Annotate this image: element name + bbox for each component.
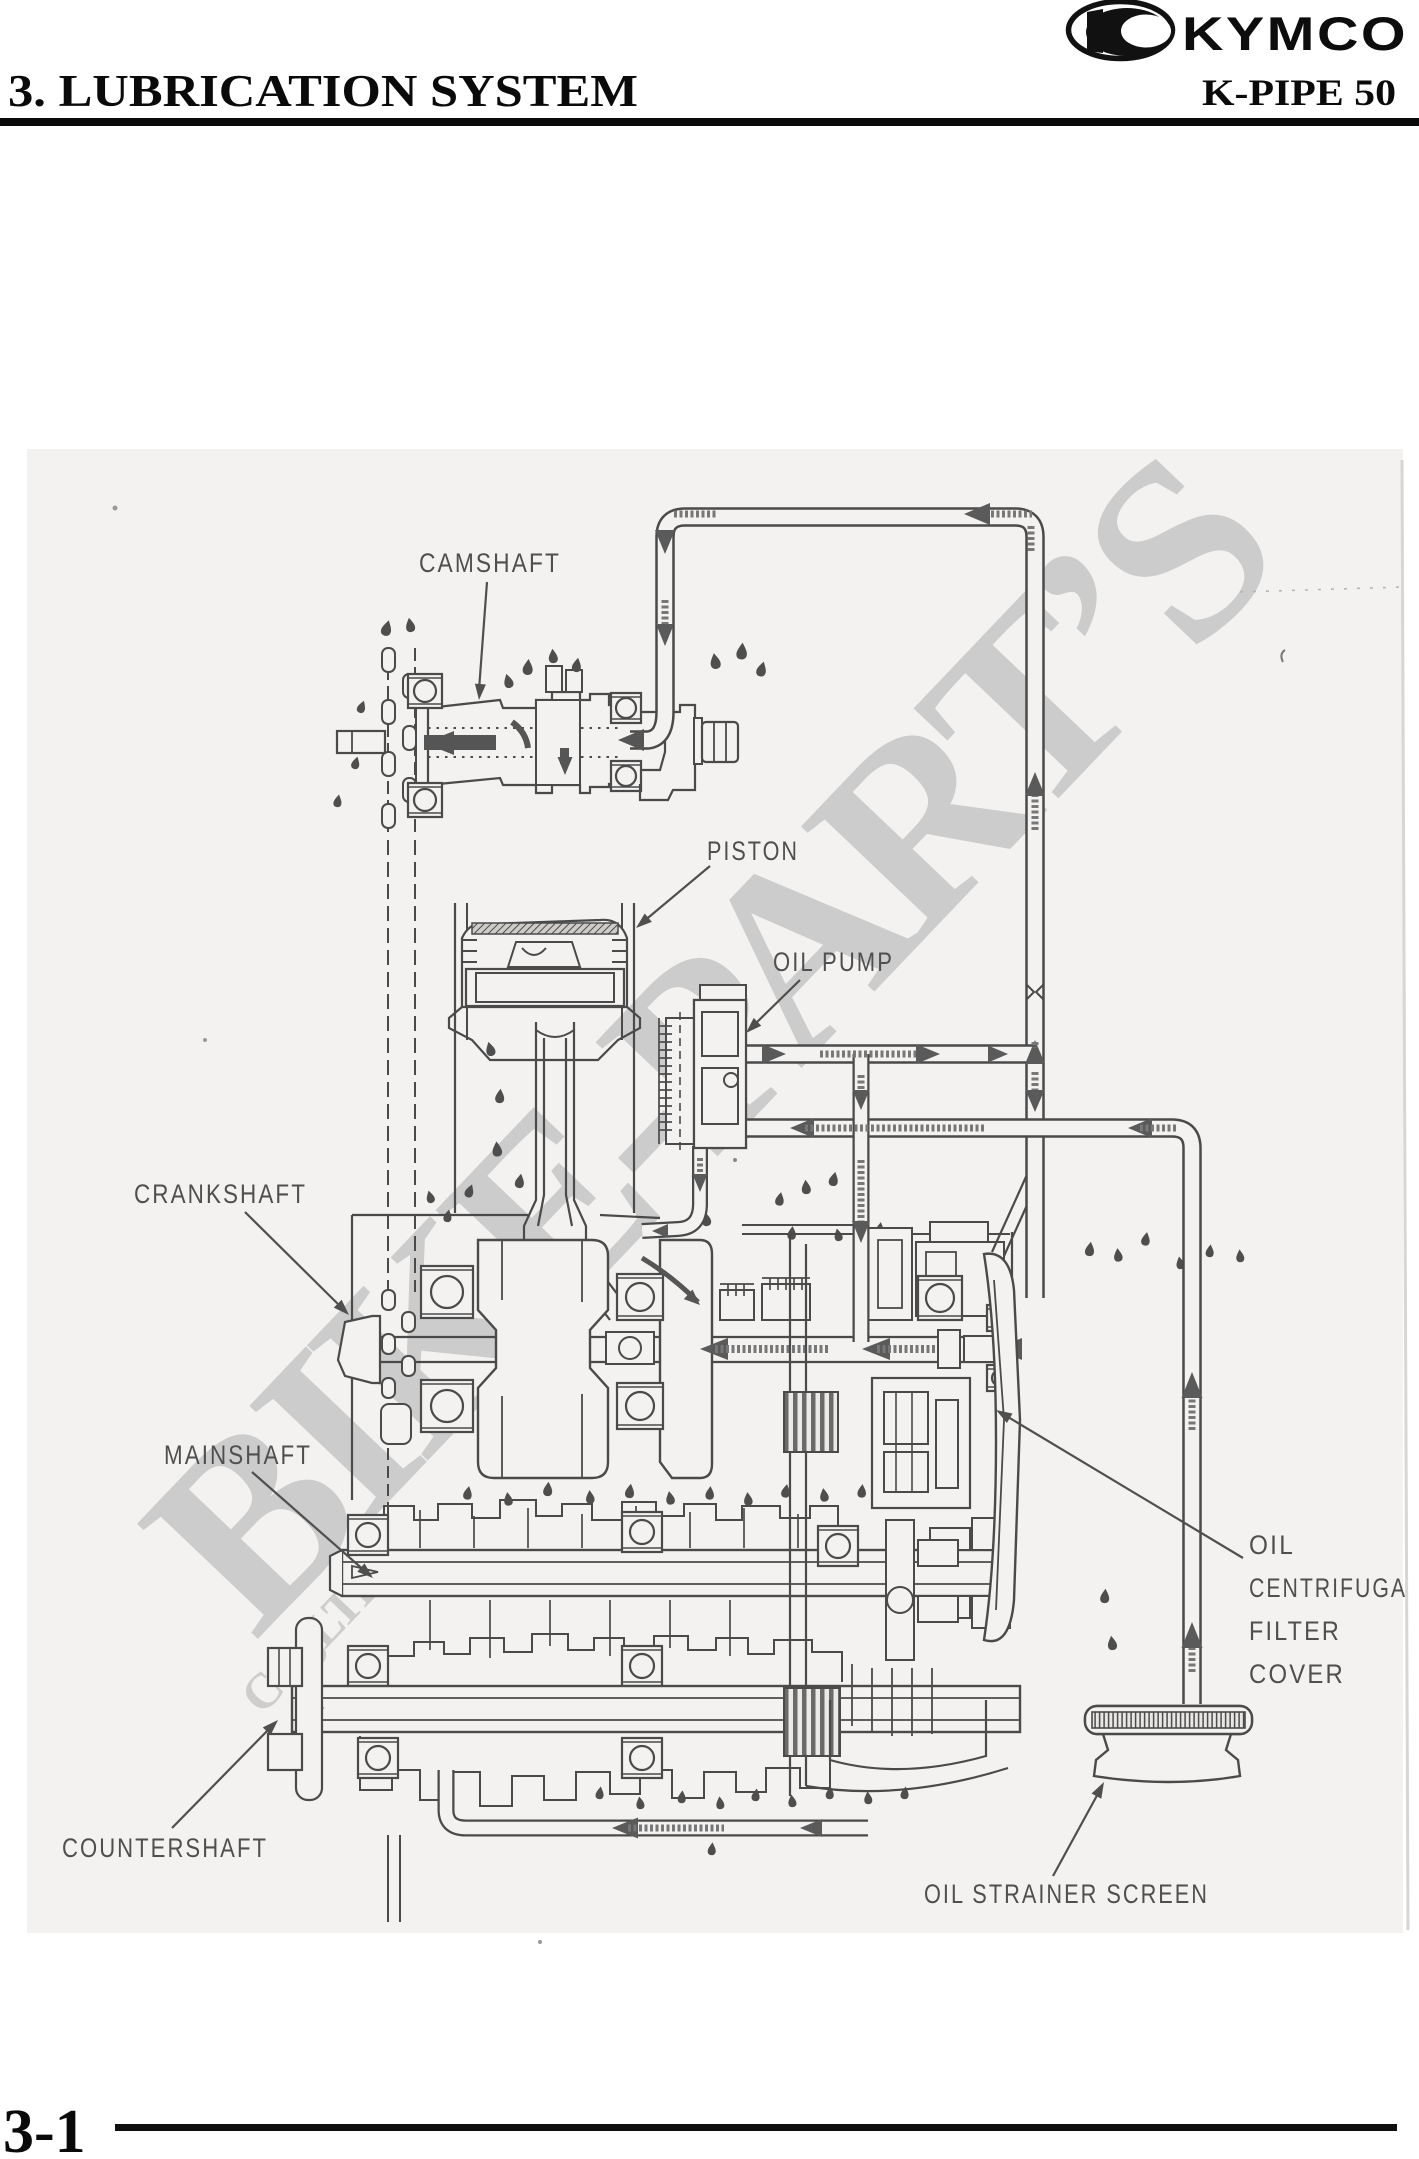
svg-text:CRANKSHAFT: CRANKSHAFT bbox=[134, 1179, 307, 1209]
svg-text:CENTRIFUGA: CENTRIFUGA bbox=[1249, 1573, 1407, 1603]
svg-text:OIL PUMP: OIL PUMP bbox=[773, 947, 894, 977]
svg-text:3-1: 3-1 bbox=[3, 2098, 86, 2154]
svg-text:FILTER: FILTER bbox=[1249, 1616, 1341, 1646]
svg-text:COUNTERSHAFT: COUNTERSHAFT bbox=[62, 1833, 268, 1863]
svg-text:PISTON: PISTON bbox=[707, 836, 799, 866]
svg-text:K-PIPE 50: K-PIPE 50 bbox=[1202, 73, 1396, 114]
svg-text:OIL: OIL bbox=[1249, 1530, 1295, 1560]
svg-text:3. LUBRICATION SYSTEM: 3. LUBRICATION SYSTEM bbox=[8, 65, 638, 116]
svg-text:COVER: COVER bbox=[1249, 1659, 1345, 1689]
svg-text:KYMCO: KYMCO bbox=[1182, 7, 1408, 60]
svg-text:CAMSHAFT: CAMSHAFT bbox=[419, 548, 561, 578]
svg-text:MAINSHAFT: MAINSHAFT bbox=[164, 1440, 312, 1470]
svg-text:OIL STRAINER SCREEN: OIL STRAINER SCREEN bbox=[924, 1879, 1209, 1909]
